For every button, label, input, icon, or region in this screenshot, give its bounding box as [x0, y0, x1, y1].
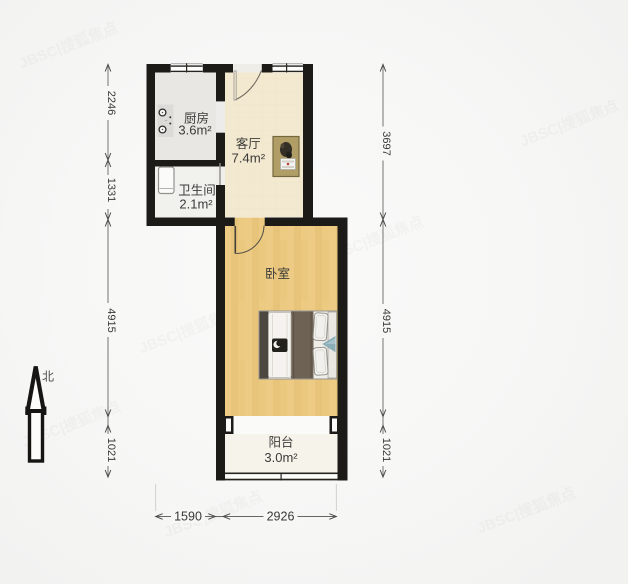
svg-text:3.0m²: 3.0m²	[264, 450, 298, 465]
svg-text:4915: 4915	[105, 308, 117, 332]
svg-text:1331: 1331	[105, 178, 117, 202]
svg-text:卧室: 卧室	[265, 266, 290, 281]
svg-text:2246: 2246	[105, 91, 117, 115]
svg-text:3697: 3697	[380, 131, 392, 155]
svg-text:4915: 4915	[380, 309, 392, 333]
svg-text:2.1m²: 2.1m²	[179, 197, 213, 212]
svg-text:1021: 1021	[380, 438, 392, 462]
svg-text:JBSC|搜狐焦点: JBSC|搜狐焦点	[16, 18, 120, 72]
svg-text:卫生间: 卫生间	[178, 184, 216, 198]
svg-text:7.4m²: 7.4m²	[231, 151, 265, 166]
svg-text:2926: 2926	[267, 510, 295, 524]
svg-text:阳台: 阳台	[268, 435, 293, 450]
svg-text:客厅: 客厅	[236, 136, 261, 151]
svg-text:JBSC|搜狐焦点: JBSC|搜狐焦点	[474, 483, 578, 537]
svg-text:JBSC|搜狐焦点: JBSC|搜狐焦点	[517, 96, 621, 150]
svg-text:3.6m²: 3.6m²	[178, 123, 212, 138]
svg-text:1021: 1021	[105, 438, 117, 462]
svg-text:北: 北	[42, 370, 54, 384]
svg-text:1590: 1590	[174, 510, 202, 524]
